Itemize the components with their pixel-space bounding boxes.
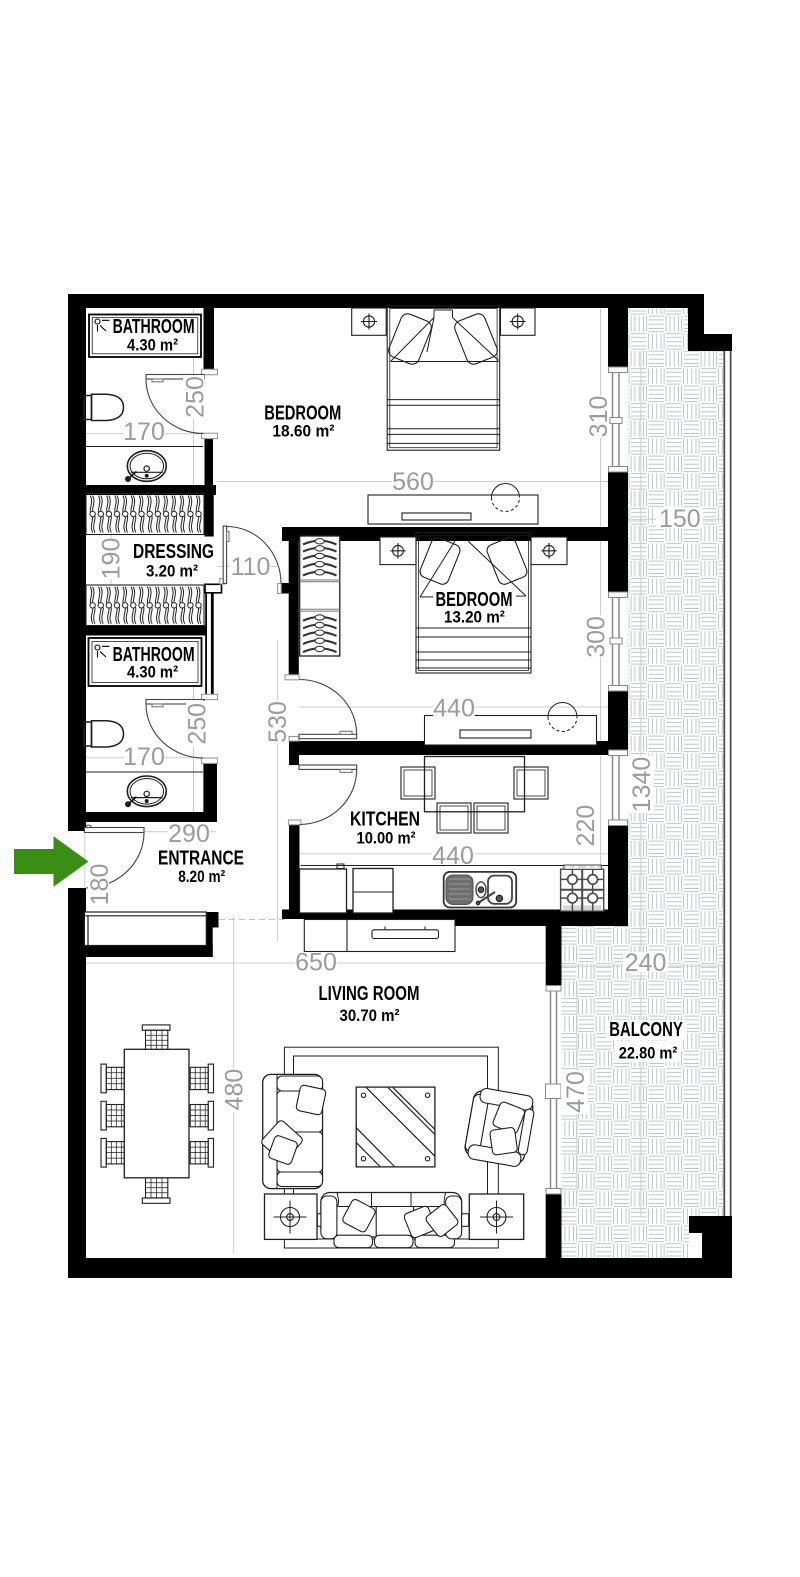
svg-text:170: 170 (123, 418, 165, 446)
svg-text:30.70 m²: 30.70 m² (340, 1007, 400, 1025)
svg-text:10.00 m²: 10.00 m² (357, 830, 416, 848)
svg-text:300: 300 (583, 616, 611, 658)
svg-text:250: 250 (184, 703, 212, 745)
svg-text:4.30 m²: 4.30 m² (127, 664, 178, 682)
svg-text:440: 440 (432, 842, 474, 870)
svg-text:KITCHEN: KITCHEN (350, 809, 420, 831)
svg-text:ENTRANCE: ENTRANCE (158, 848, 244, 870)
svg-text:170: 170 (123, 743, 165, 771)
svg-text:180: 180 (86, 864, 114, 906)
svg-text:470: 470 (562, 1071, 590, 1113)
svg-text:BEDROOM: BEDROOM (264, 403, 341, 425)
svg-text:310: 310 (585, 396, 613, 438)
svg-text:650: 650 (295, 949, 337, 977)
svg-text:150: 150 (659, 505, 701, 533)
svg-text:4.30 m²: 4.30 m² (127, 337, 178, 355)
svg-text:290: 290 (168, 820, 210, 848)
svg-text:22.80 m²: 22.80 m² (619, 1045, 678, 1063)
svg-text:110: 110 (231, 553, 271, 581)
svg-text:BATHROOM: BATHROOM (113, 316, 195, 338)
svg-text:13.20 m²: 13.20 m² (444, 609, 505, 627)
svg-text:8.20 m²: 8.20 m² (178, 868, 225, 886)
svg-text:250: 250 (181, 376, 209, 418)
svg-text:18.60 m²: 18.60 m² (272, 423, 334, 441)
svg-text:440: 440 (433, 695, 475, 723)
svg-text:220: 220 (572, 805, 600, 847)
svg-text:240: 240 (625, 949, 667, 977)
svg-text:3.20 m²: 3.20 m² (146, 563, 198, 581)
svg-text:560: 560 (392, 468, 434, 496)
svg-text:480: 480 (221, 1069, 249, 1111)
svg-text:BALCONY: BALCONY (609, 1019, 683, 1041)
svg-text:1340: 1340 (628, 757, 656, 813)
svg-text:LIVING ROOM: LIVING ROOM (319, 983, 420, 1005)
svg-text:DRESSING: DRESSING (133, 541, 214, 563)
svg-text:190: 190 (98, 538, 126, 580)
svg-text:530: 530 (264, 701, 292, 743)
